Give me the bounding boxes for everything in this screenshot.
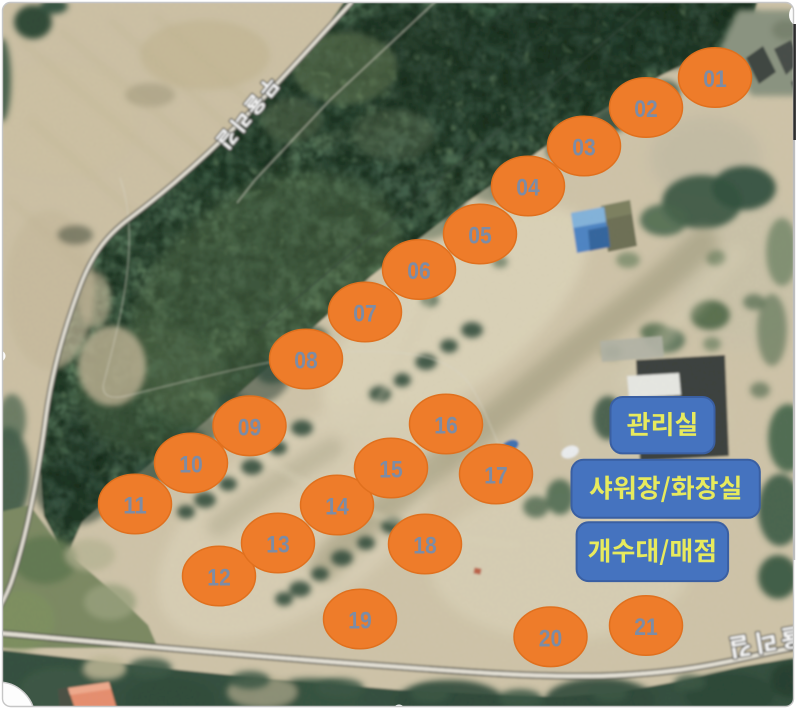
svg-text:09: 09 xyxy=(238,414,262,441)
svg-text:03: 03 xyxy=(572,135,596,162)
svg-text:21: 21 xyxy=(634,614,658,641)
svg-text:16: 16 xyxy=(434,413,458,440)
svg-text:04: 04 xyxy=(516,175,540,202)
svg-text:08: 08 xyxy=(294,348,318,375)
svg-text:19: 19 xyxy=(348,608,372,635)
svg-text:12: 12 xyxy=(207,565,231,592)
svg-text:20: 20 xyxy=(539,625,563,652)
svg-text:18: 18 xyxy=(413,533,437,560)
svg-text:17: 17 xyxy=(484,463,508,490)
svg-text:01: 01 xyxy=(703,66,727,93)
svg-text:14: 14 xyxy=(325,494,349,521)
svg-text:13: 13 xyxy=(266,532,290,559)
svg-text:10: 10 xyxy=(179,452,203,479)
svg-text:02: 02 xyxy=(634,96,658,123)
svg-text:07: 07 xyxy=(353,301,377,328)
svg-text:15: 15 xyxy=(379,457,403,484)
svg-text:06: 06 xyxy=(407,258,431,285)
svg-text:05: 05 xyxy=(468,223,492,250)
svg-text:11: 11 xyxy=(123,493,147,520)
